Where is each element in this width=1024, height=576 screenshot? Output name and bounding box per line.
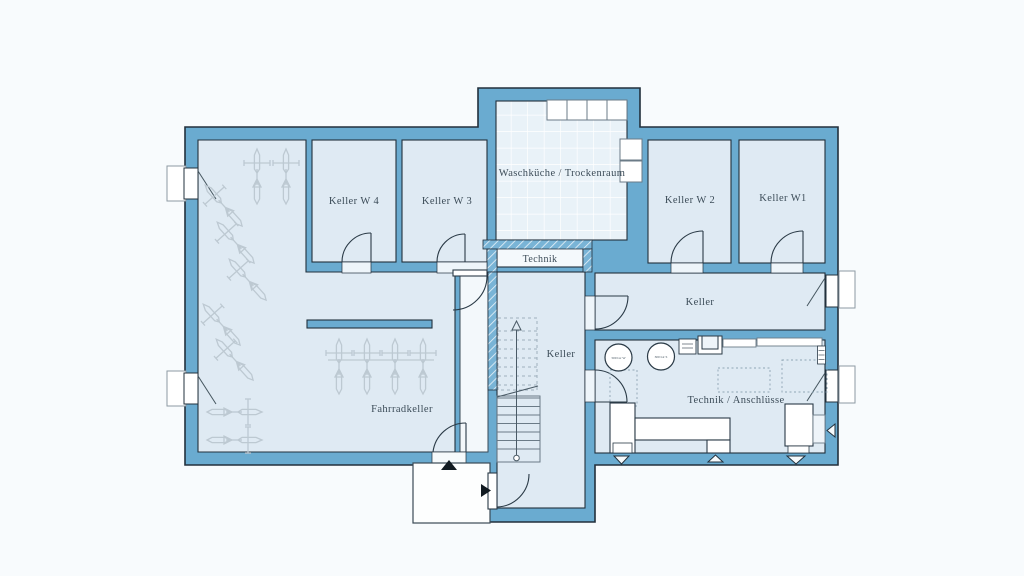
label-keller-corridor: Keller xyxy=(686,297,715,308)
tank-1-label: 500 Ltr W xyxy=(611,356,626,360)
label-technik-anschluesse: Technik / Anschlüsse xyxy=(687,395,784,406)
meter-panel xyxy=(818,346,826,364)
stair-walkline-start xyxy=(514,455,520,461)
tank-2-label: 300 Ltr S xyxy=(655,355,668,359)
label-keller-w4: Keller W 4 xyxy=(329,196,380,207)
label-keller-w3: Keller W 3 xyxy=(422,196,472,207)
label-fahrradkeller: Fahrradkeller xyxy=(371,404,433,415)
bike-rack-wall xyxy=(307,320,432,328)
exterior-stairwell xyxy=(413,463,490,523)
label-technik: Technik xyxy=(523,254,558,265)
vestibule-shaft xyxy=(460,272,488,452)
sink-unit xyxy=(698,336,722,354)
wall-counters xyxy=(723,338,822,347)
label-waschkueche: Waschküche / Trockenraum xyxy=(499,168,626,179)
floor-plan-drawing: 500 Ltr W 300 Ltr S xyxy=(0,0,1024,576)
label-keller-w2: Keller W 2 xyxy=(665,195,715,206)
label-keller-stair-hall: Keller xyxy=(547,349,576,360)
label-keller-w1: Keller W1 xyxy=(759,193,806,204)
distribution-box xyxy=(679,339,696,354)
room-keller-stair-hall xyxy=(497,272,585,508)
floor-plan-page: 500 Ltr W 300 Ltr S xyxy=(0,0,1024,576)
